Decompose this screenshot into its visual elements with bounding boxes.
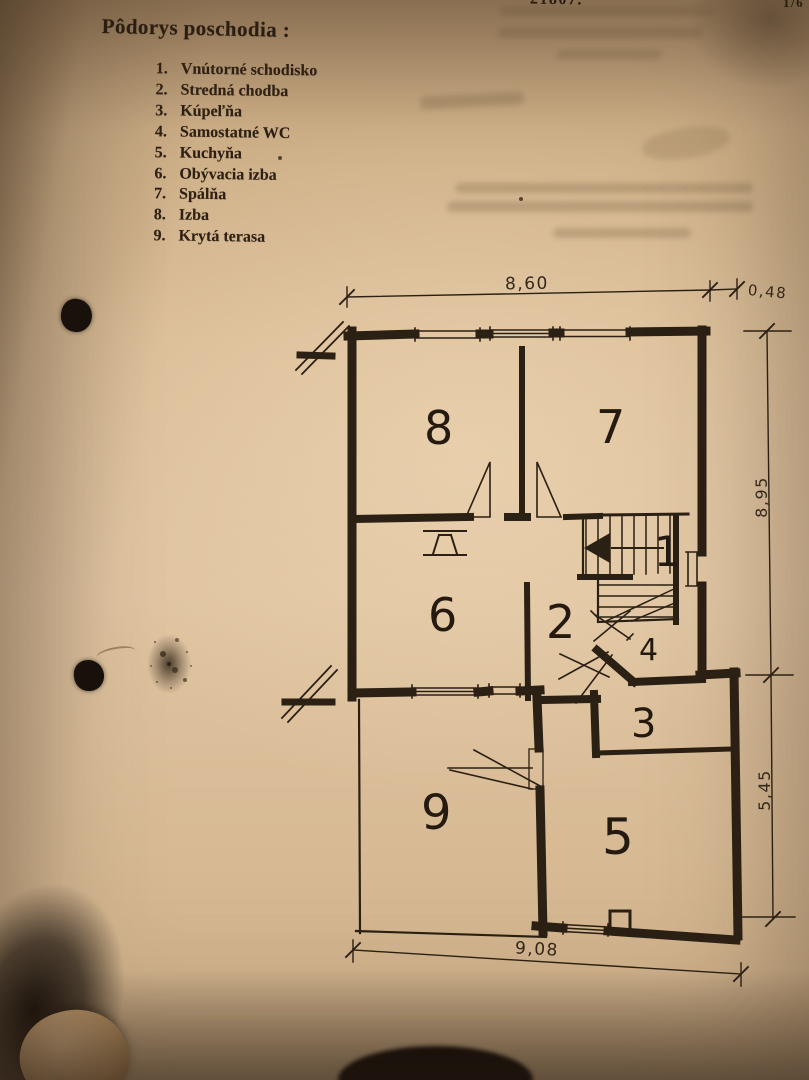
dimension-top-right-offset: 0,48: [747, 281, 788, 302]
room-number-1: 1: [654, 527, 681, 576]
bleedthrough-text-smudge: [556, 50, 663, 59]
room-number-5: 5: [602, 808, 634, 866]
neighbor-wall-stubs: [285, 355, 332, 702]
room-number-8: 8: [424, 401, 453, 455]
room-number-6: 6: [428, 588, 457, 642]
thin-walls: [596, 749, 733, 753]
cut-off-text-fragment: 21807.: [530, 0, 583, 9]
exterior-walls: [348, 330, 738, 940]
page-title: Pôdorys poschodia :: [101, 14, 290, 43]
legend-item: 4.Samostatné WC: [140, 122, 317, 145]
bleedthrough-text-smudge: [498, 27, 704, 38]
room-number-7: 7: [596, 400, 625, 454]
room-number-3: 3: [631, 701, 656, 747]
floor-plan-drawing: 8 7 6 2 1 4 3 5 9 8,60 0,48 8,95: [255, 248, 809, 1023]
dimension-top-width: 8,60: [505, 274, 549, 295]
stair-direction-arrow-icon: [584, 533, 610, 563]
bleedthrough-text-smudge: [455, 183, 754, 193]
chimney-symbol: [424, 531, 466, 555]
room-numbers: 8 7 6 2 1 4 3 5 9: [421, 400, 681, 866]
scanned-floor-plan-photo: 21807. 1/6 Pôdorys poschodia : 1.Vnútorn…: [0, 0, 809, 1080]
legend-item: 5.Kuchyňa: [140, 143, 317, 166]
ink-smudge: [147, 634, 191, 694]
room-legend: 1.Vnútorné schodisko 2.Stredná chodba 3.…: [138, 59, 317, 250]
room-number-9: 9: [421, 785, 452, 841]
bleedthrough-text-smudge: [447, 201, 754, 212]
legend-item: 9.Krytá terasa: [138, 226, 315, 249]
ink-speck: [519, 197, 523, 201]
legend-item: 8.Izba: [139, 205, 316, 228]
stair-boundary: [600, 514, 688, 515]
legend-item: 6.Obývacia izba: [139, 164, 316, 187]
legend-item: 7.Spálňa: [139, 184, 316, 207]
legend-item: 1.Vnútorné schodisko: [141, 59, 318, 82]
dimension-bottom-width: 9,08: [515, 938, 560, 960]
bottom-shadow: [0, 970, 809, 1080]
room-number-4: 4: [639, 633, 658, 668]
legend-item: 2.Stredná chodba: [140, 80, 317, 103]
dimension-right-upper-height: 8,95: [752, 476, 771, 518]
dimension-right-lower-height: 5,45: [755, 769, 774, 811]
wall-break-marks: [282, 322, 349, 722]
bleedthrough-text-smudge: [553, 228, 692, 238]
legend-item: 3.Kúpeľňa: [140, 101, 317, 124]
cut-off-text-fragment: 1/6: [783, 0, 804, 11]
room-number-2: 2: [546, 595, 575, 649]
